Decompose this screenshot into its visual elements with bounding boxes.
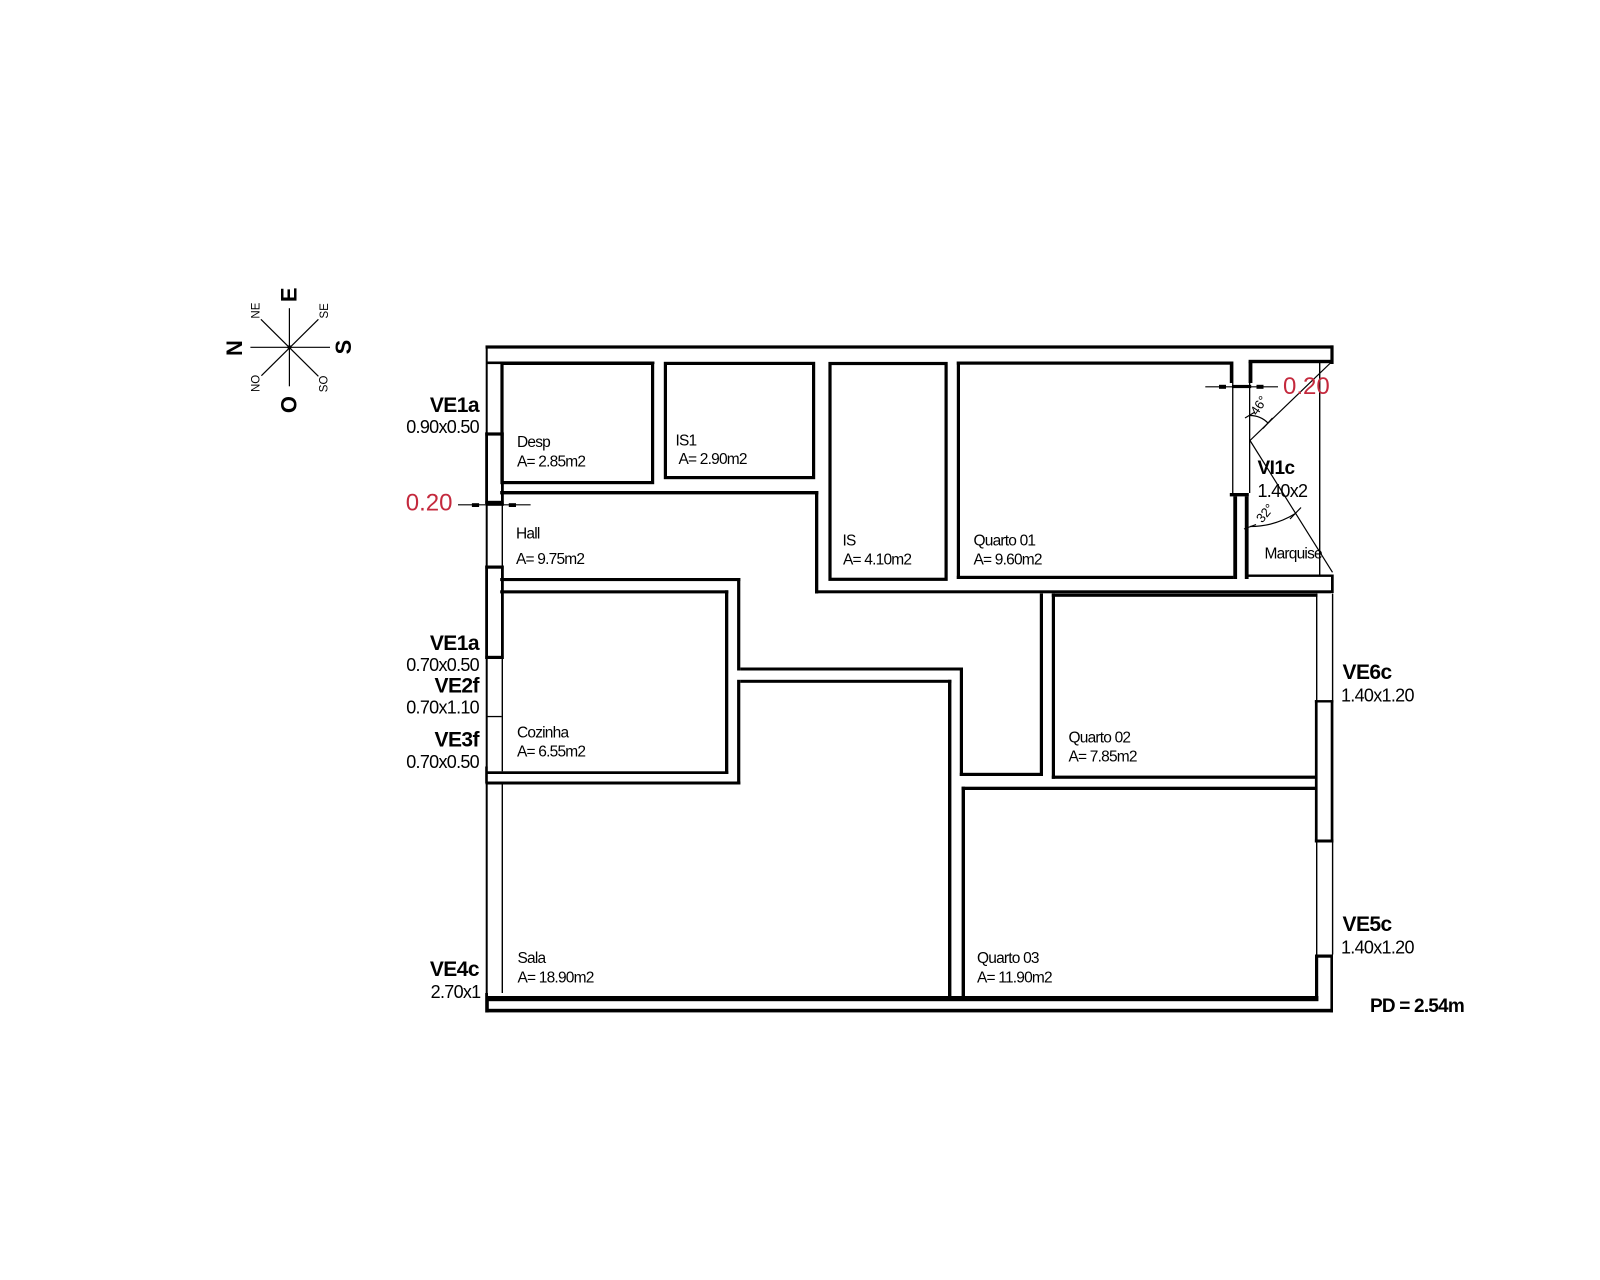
svg-text:O: O (276, 396, 301, 413)
svg-text:0.20: 0.20 (406, 490, 453, 517)
svg-text:1.40x1.20: 1.40x1.20 (1341, 686, 1414, 706)
svg-text:Desp: Desp (517, 434, 550, 451)
svg-text:0.70x1.10: 0.70x1.10 (406, 698, 479, 718)
svg-text:Sala: Sala (518, 950, 547, 967)
svg-text:VE3f: VE3f (435, 729, 481, 752)
svg-text:PD = 2.54m: PD = 2.54m (1370, 996, 1464, 1017)
svg-text:E: E (276, 287, 301, 302)
svg-text:VE4c: VE4c (430, 958, 480, 981)
svg-text:VE1a: VE1a (430, 394, 480, 417)
svg-text:NE: NE (251, 302, 263, 318)
svg-text:Marquise: Marquise (1265, 546, 1323, 563)
svg-text:Quarto 01: Quarto 01 (974, 533, 1036, 550)
svg-text:0.20: 0.20 (1283, 373, 1330, 400)
svg-text:VE6c: VE6c (1343, 661, 1393, 684)
svg-text:A= 18.90m2: A= 18.90m2 (518, 970, 594, 987)
svg-text:0.90x0.50: 0.90x0.50 (406, 417, 479, 437)
svg-text:N: N (222, 340, 247, 356)
svg-text:0.70x0.50: 0.70x0.50 (406, 752, 479, 772)
svg-text:SO: SO (318, 376, 330, 393)
svg-text:A= 9.60m2: A= 9.60m2 (974, 552, 1042, 569)
svg-text:Quarto 03: Quarto 03 (977, 950, 1039, 967)
svg-text:VI1c: VI1c (1258, 458, 1296, 479)
svg-text:0.70x0.50: 0.70x0.50 (406, 655, 479, 675)
svg-text:SE: SE (319, 303, 331, 319)
svg-text:VE1a: VE1a (430, 632, 480, 655)
svg-text:VE5c: VE5c (1343, 913, 1393, 936)
svg-text:A= 4.10m2: A= 4.10m2 (843, 552, 911, 569)
svg-text:1.40x1.20: 1.40x1.20 (1341, 938, 1414, 958)
svg-text:A= 11.90m2: A= 11.90m2 (977, 970, 1052, 987)
svg-text:Hall: Hall (516, 526, 540, 543)
svg-text:Quarto 02: Quarto 02 (1069, 730, 1131, 747)
svg-text:S: S (331, 340, 356, 355)
svg-text:2.70x1: 2.70x1 (431, 982, 482, 1002)
svg-text:A= 7.85m2: A= 7.85m2 (1069, 749, 1137, 766)
svg-text:IS1: IS1 (676, 433, 697, 450)
svg-text:1.40x2: 1.40x2 (1258, 481, 1309, 501)
svg-text:VE2f: VE2f (435, 675, 481, 698)
svg-text:Cozinha: Cozinha (517, 725, 569, 742)
svg-text:NO: NO (250, 375, 262, 392)
svg-text:A= 9.75m2: A= 9.75m2 (516, 551, 584, 568)
svg-text:A= 2.90m2: A= 2.90m2 (679, 451, 747, 468)
svg-text:IS: IS (843, 533, 857, 550)
svg-text:A= 2.85m2: A= 2.85m2 (517, 454, 585, 471)
svg-text:A= 6.55m2: A= 6.55m2 (517, 744, 585, 761)
